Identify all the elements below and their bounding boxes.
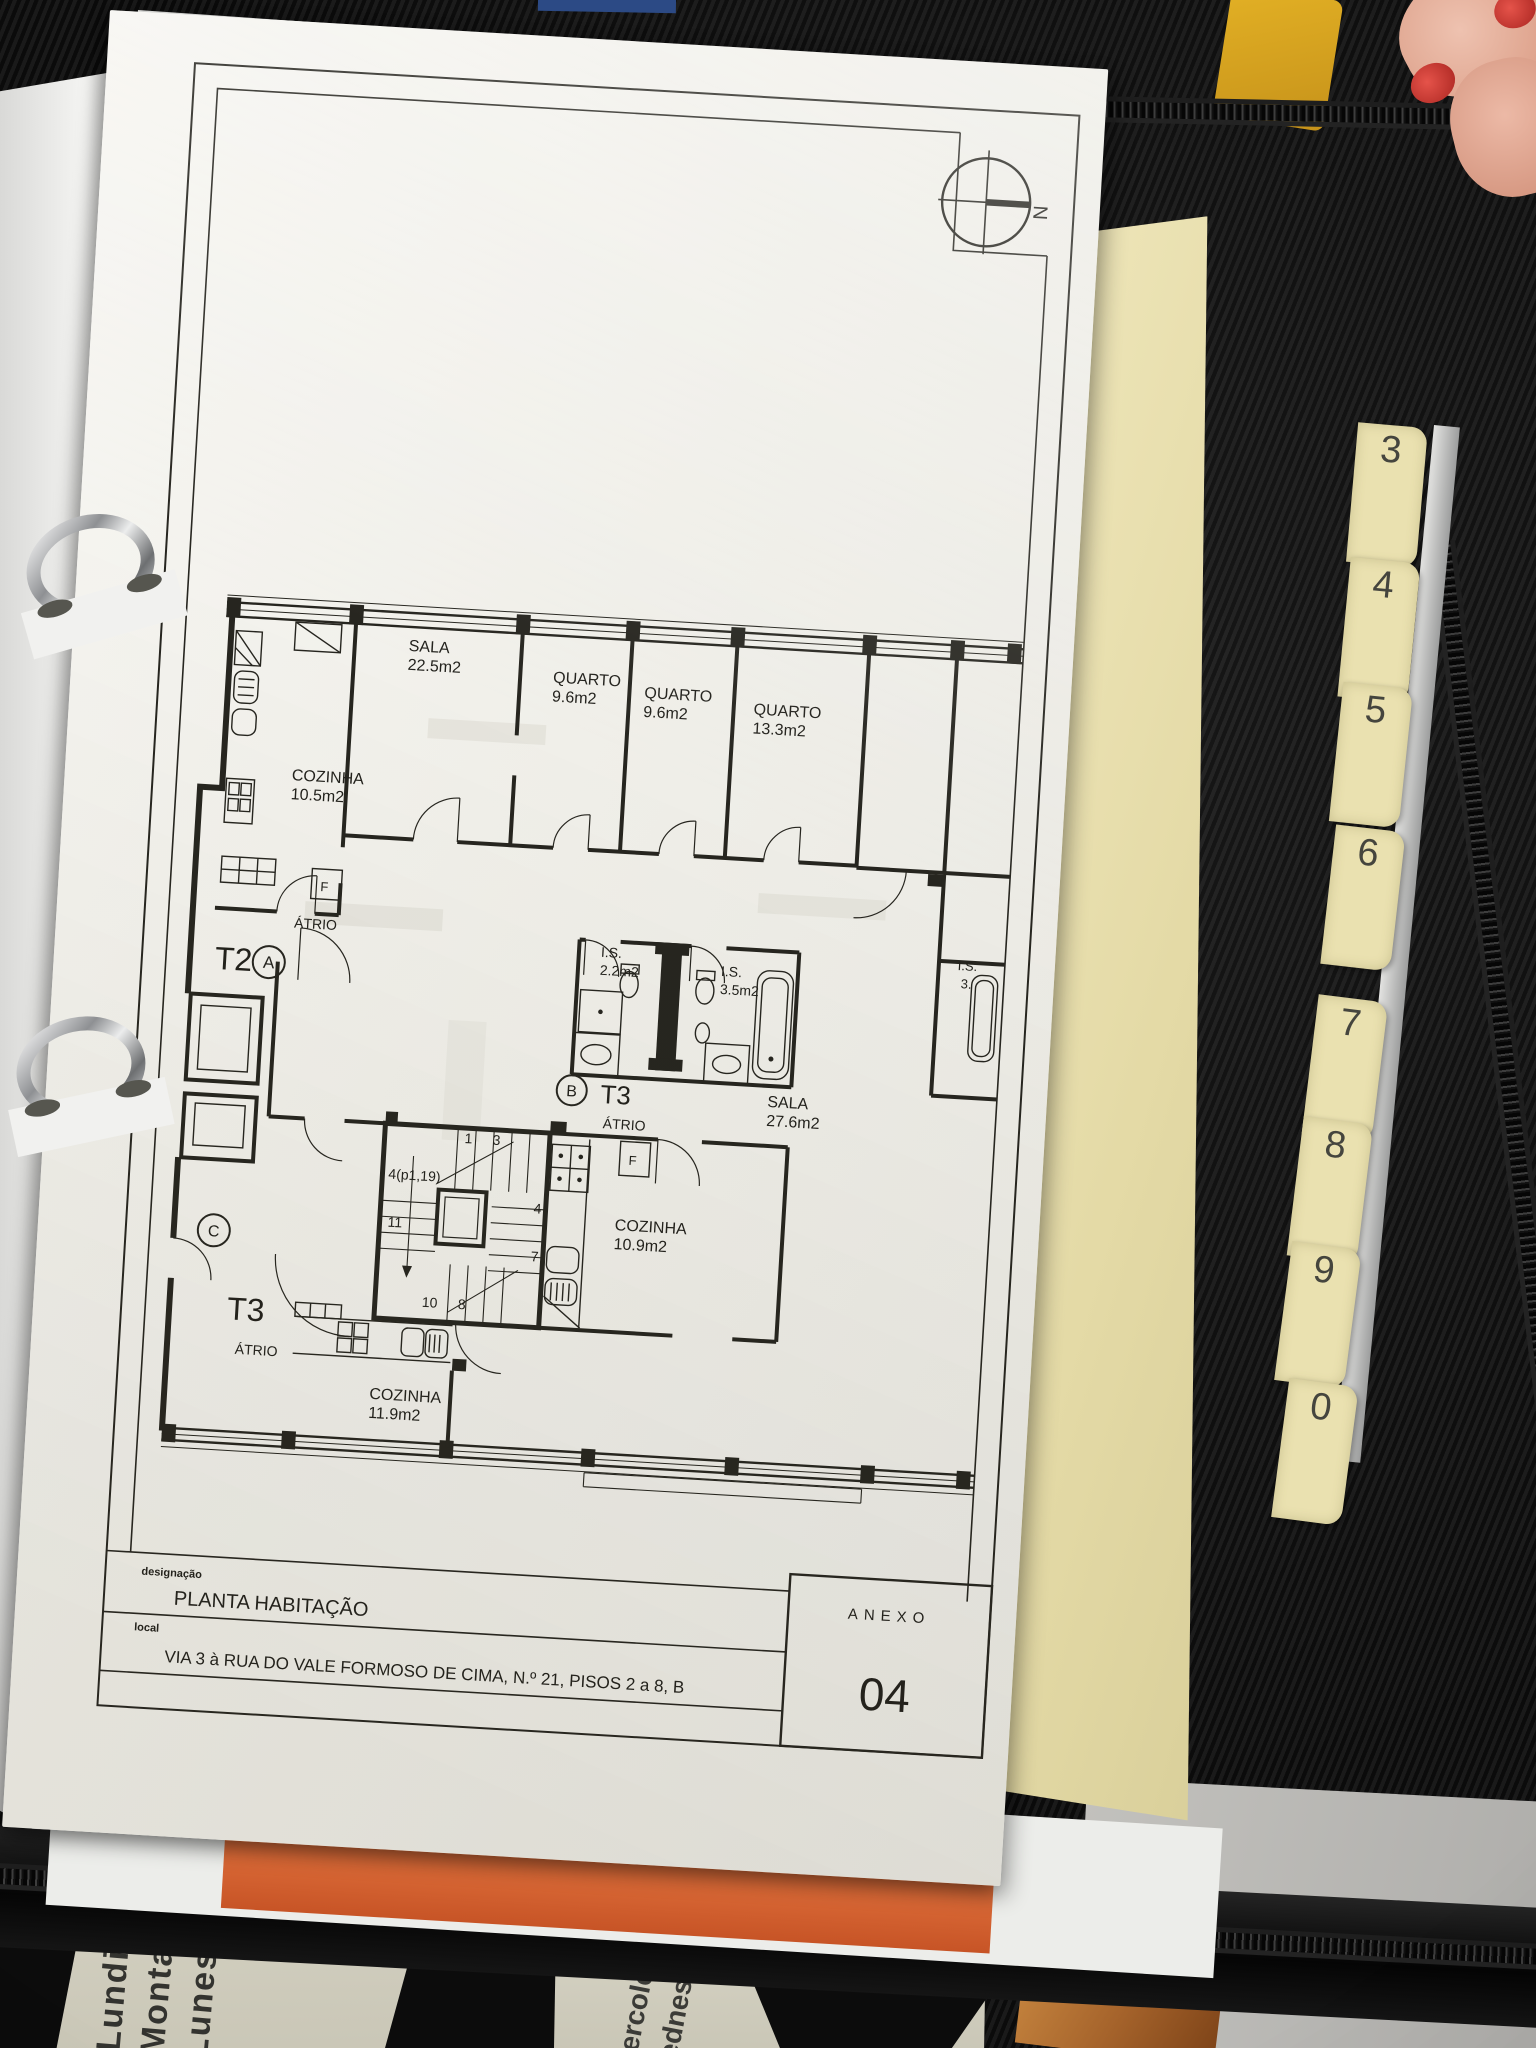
photo-scene: Lundi Montag Lunes ercoled ednes 3 4 5 6… <box>0 0 1536 2048</box>
compass-north-label: N <box>1028 205 1051 221</box>
binder-tab-label: 4 <box>1371 563 1396 607</box>
floor-plan-drawing: N <box>2 10 1108 1886</box>
unit-a-atrio: ÁTRIO <box>294 915 338 934</box>
binder-tab-3: 3 <box>1346 422 1428 568</box>
stair-number: 1 <box>464 1130 473 1146</box>
stair-number: 4 <box>533 1200 542 1216</box>
unit-c-letter: C <box>207 1223 220 1241</box>
room-area-quarto-3: 13.3m2 <box>752 720 806 740</box>
binder-tab-label: 6 <box>1355 831 1381 875</box>
binder-tab-label: 5 <box>1363 688 1388 732</box>
local-label: local <box>134 1621 160 1634</box>
room-label-cozinha-b: COZINHA <box>614 1217 687 1238</box>
fridge-label-a: F <box>320 879 329 894</box>
designacao-value: PLANTA HABITAÇÃO <box>173 1586 369 1622</box>
room-label-quarto-2: QUARTO <box>644 685 713 706</box>
room-label-cozinha-a: COZINHA <box>291 767 364 788</box>
room-area-cozinha-b: 10.9m2 <box>613 1236 667 1256</box>
wall-piers <box>161 596 1022 1490</box>
anexo-label: ANEXO <box>847 1606 930 1628</box>
stairwell: 1 3 4(p1,19) 4 11 7 10 8 <box>374 1123 550 1327</box>
stair-number: 10 <box>421 1294 438 1311</box>
binder-tab-label: 9 <box>1311 1248 1337 1292</box>
unit-c-type: T3 <box>226 1290 265 1328</box>
room-area-cozinha-a: 10.5m2 <box>290 786 344 806</box>
room-area-cozinha-c: 11.9m2 <box>368 1405 421 1425</box>
floor-plan-sheet: N <box>2 10 1108 1886</box>
stair-number: 8 <box>457 1296 466 1312</box>
stair-number: 4(p1,19) <box>388 1166 441 1185</box>
binder-tab-label: 8 <box>1322 1123 1348 1167</box>
binder-tab-4: 4 <box>1337 557 1420 703</box>
room-area-sala-a: 22.5m2 <box>407 657 461 677</box>
interior-walls <box>165 615 1023 1479</box>
room-label-is-edge: I.S. <box>957 958 977 974</box>
designacao-label: designação <box>141 1566 202 1582</box>
room-area-is-2: 3.5m2 <box>720 981 760 999</box>
unit-c-atrio: ÁTRIO <box>234 1341 278 1360</box>
binder-tab-label: 3 <box>1379 428 1404 472</box>
room-area-is-edge: 3. <box>960 976 972 992</box>
room-label-cozinha-c: COZINHA <box>369 1386 442 1407</box>
room-area-quarto-1: 9.6m2 <box>552 688 598 708</box>
binder-tab-label: 0 <box>1308 1385 1334 1429</box>
anexo-number: 04 <box>857 1667 911 1722</box>
stair-number: 11 <box>387 1214 403 1231</box>
room-label-is-1: I.S. <box>601 944 623 961</box>
room-label-quarto-1: QUARTO <box>553 669 622 690</box>
room-label-sala-b: SALA <box>767 1094 809 1113</box>
fridge-label-b: F <box>628 1153 637 1168</box>
room-label-is-2: I.S. <box>721 963 743 980</box>
room-label-quarto-3: QUARTO <box>753 701 822 722</box>
stair-number: 3 <box>492 1132 501 1148</box>
room-label-sala-a: SALA <box>408 638 450 657</box>
binder-tab-label: 7 <box>1337 1001 1363 1045</box>
room-area-sala-b: 27.6m2 <box>766 1113 820 1133</box>
room-area-is-1: 2.2m2 <box>599 962 639 980</box>
unit-b-type: T3 <box>600 1079 632 1111</box>
fixtures <box>186 631 1016 1510</box>
binder-tab-5: 5 <box>1329 682 1413 829</box>
title-block: designação PLANTA HABITAÇÃO local VIA 3 … <box>131 1563 931 1723</box>
unit-b-letter: B <box>566 1083 578 1101</box>
stair-number: 7 <box>530 1248 539 1264</box>
unit-a-letter: A <box>263 953 276 973</box>
unit-a-type: T2 <box>214 940 253 978</box>
room-area-quarto-2: 9.6m2 <box>643 704 689 724</box>
unit-b-atrio: ÁTRIO <box>602 1115 646 1134</box>
